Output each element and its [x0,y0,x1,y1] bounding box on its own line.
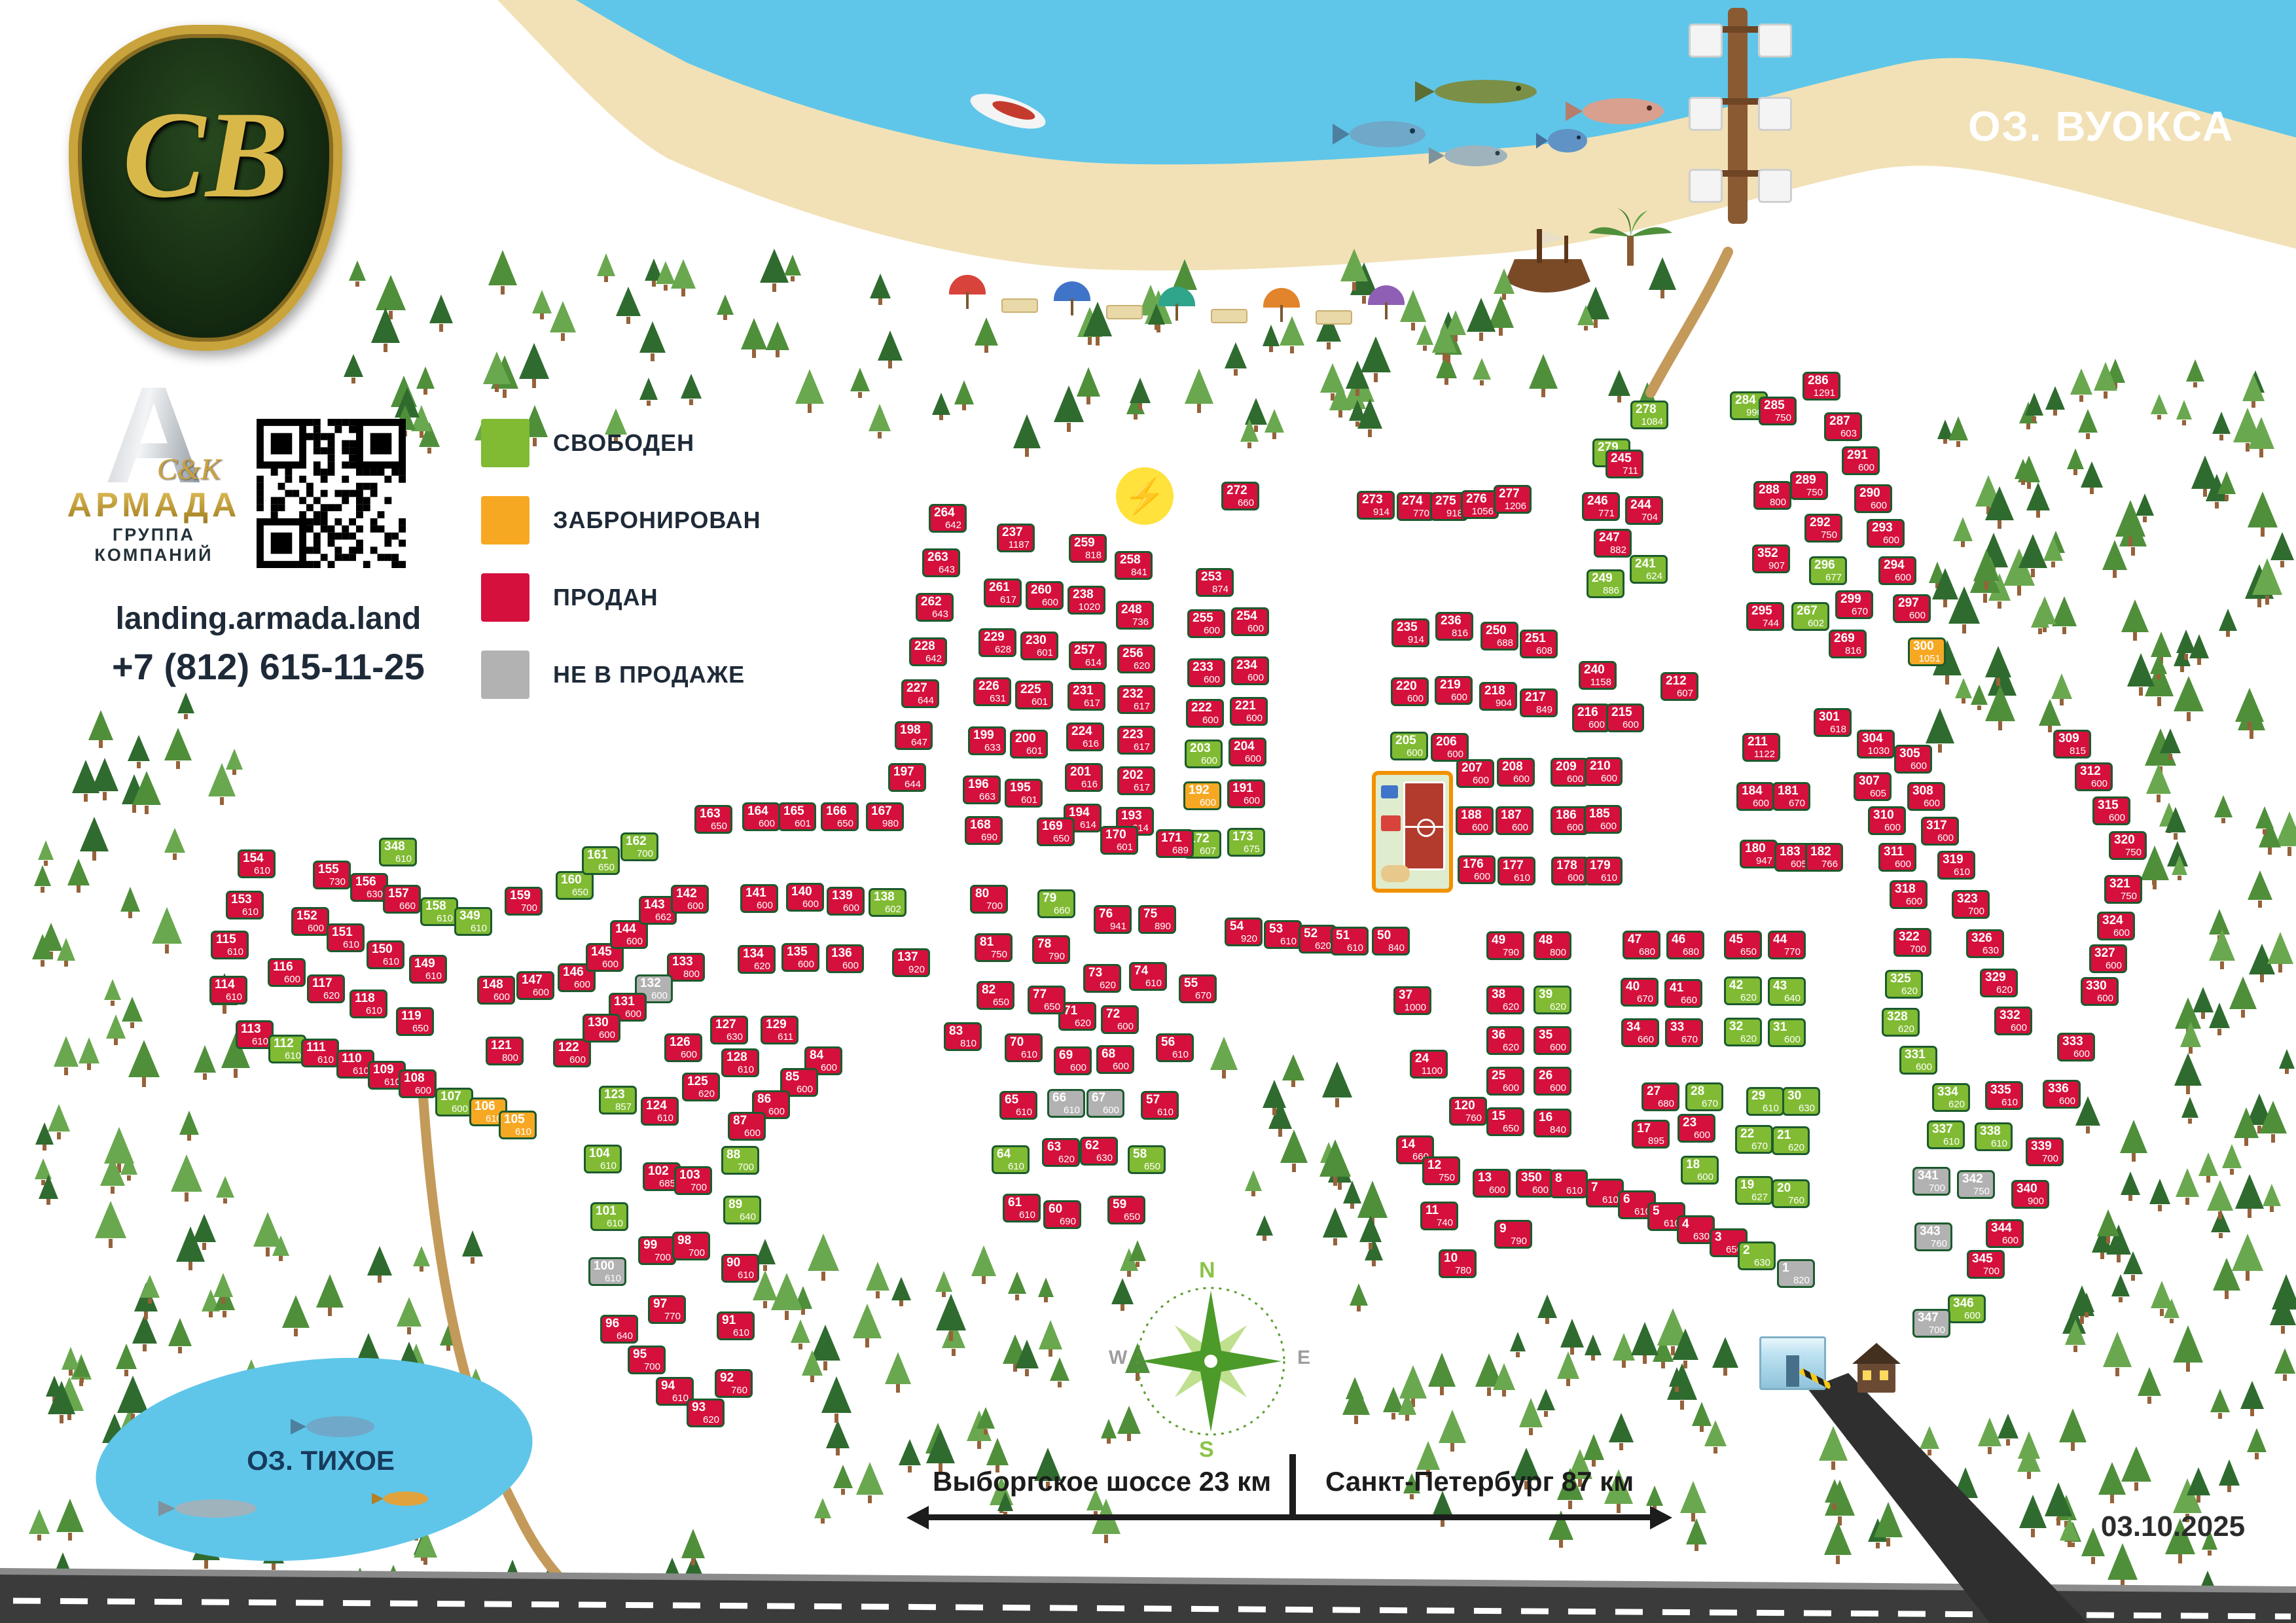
plot-26[interactable]: 26600 [1534,1067,1571,1096]
plot-326[interactable]: 326630 [1966,929,2004,958]
plot-59[interactable]: 59650 [1107,1196,1145,1224]
plot-160[interactable]: 160650 [556,871,594,900]
plot-66[interactable]: 66610 [1047,1089,1085,1118]
plot-245[interactable]: 245711 [1605,450,1643,478]
plot-203[interactable]: 203600 [1185,740,1223,768]
plot-57[interactable]: 57610 [1141,1091,1179,1120]
plot-98[interactable]: 98700 [672,1232,710,1260]
plot-62[interactable]: 62630 [1080,1137,1118,1166]
plot-126[interactable]: 126600 [664,1033,702,1062]
plot-80[interactable]: 80700 [970,885,1008,914]
plot-210[interactable]: 210600 [1585,757,1623,786]
plot-15[interactable]: 15650 [1486,1107,1524,1136]
plot-317[interactable]: 317600 [1921,817,1959,846]
plot-163[interactable]: 163650 [694,805,732,834]
plot-234[interactable]: 234600 [1231,656,1269,685]
plot-24[interactable]: 241100 [1410,1050,1448,1079]
plot-249[interactable]: 249886 [1587,569,1624,598]
plot-291[interactable]: 291600 [1842,446,1880,475]
plot-139[interactable]: 139600 [827,887,865,916]
plot-area: 810 [949,1039,977,1048]
plot-18[interactable]: 18600 [1681,1156,1719,1185]
plot-325[interactable]: 325620 [1885,970,1923,999]
plot-area: 610 [646,1113,673,1123]
phone-number[interactable]: +7 (812) 615-11-25 [33,645,504,688]
plot-273[interactable]: 273914 [1357,491,1395,520]
plot-312[interactable]: 312600 [2075,762,2113,791]
plot-64[interactable]: 64610 [992,1145,1030,1174]
plot-30[interactable]: 30630 [1782,1087,1820,1116]
plot-278[interactable]: 2781084 [1630,401,1668,429]
plot-22[interactable]: 22670 [1735,1125,1773,1154]
plot-256[interactable]: 256620 [1117,645,1155,673]
plot-221[interactable]: 221600 [1230,697,1268,726]
plot-240[interactable]: 2401158 [1579,661,1617,690]
plot-332[interactable]: 332600 [1994,1007,2032,1035]
plot-257[interactable]: 257614 [1069,641,1107,670]
plot-45[interactable]: 45650 [1724,931,1762,959]
plot-147[interactable]: 147600 [516,971,554,1000]
plot-251[interactable]: 251608 [1520,630,1558,658]
plot-37[interactable]: 371000 [1393,986,1431,1015]
plot-322[interactable]: 322700 [1893,928,1931,957]
plot-152[interactable]: 152600 [291,907,329,936]
plot-201[interactable]: 201616 [1065,763,1103,792]
plot-207[interactable]: 207600 [1456,759,1494,788]
plot-250[interactable]: 250688 [1480,622,1518,651]
plot-217[interactable]: 217849 [1520,688,1558,717]
plot-310[interactable]: 310600 [1868,806,1906,835]
plot-151[interactable]: 151610 [327,923,365,952]
plot-186[interactable]: 186600 [1551,806,1588,835]
plot-327[interactable]: 327600 [2089,944,2127,973]
plot-255[interactable]: 255600 [1187,609,1225,638]
plot-67[interactable]: 67600 [1086,1089,1124,1118]
plot-75[interactable]: 75890 [1138,905,1176,934]
plot-177[interactable]: 177610 [1498,857,1535,885]
plot-50[interactable]: 50840 [1372,927,1410,955]
plot-350[interactable]: 350600 [1516,1169,1554,1198]
plot-216[interactable]: 216600 [1572,704,1610,732]
plot-90[interactable]: 90610 [721,1254,759,1283]
plot-155[interactable]: 155730 [313,861,351,889]
plot-287[interactable]: 287603 [1824,412,1862,441]
plot-11[interactable]: 11740 [1420,1202,1458,1230]
plot-238[interactable]: 2381020 [1067,586,1105,615]
plot-346[interactable]: 346600 [1948,1294,1986,1323]
plot-47[interactable]: 47680 [1623,931,1660,959]
plot-267[interactable]: 267602 [1791,602,1829,631]
plot-58[interactable]: 58650 [1128,1145,1166,1174]
plot-49[interactable]: 49790 [1486,931,1524,960]
plot-128[interactable]: 128610 [721,1048,759,1077]
plot-195[interactable]: 195601 [1005,779,1043,808]
plot-79[interactable]: 79660 [1037,889,1075,918]
plot-27[interactable]: 27680 [1641,1082,1679,1111]
plot-339[interactable]: 339700 [2026,1137,2064,1166]
plot-178[interactable]: 178600 [1551,857,1589,885]
plot-330[interactable]: 330600 [2081,977,2119,1006]
plot-46[interactable]: 46680 [1666,931,1704,959]
plot-341[interactable]: 341700 [1912,1167,1950,1196]
plot-274[interactable]: 274770 [1397,492,1435,521]
plot-223[interactable]: 223617 [1117,726,1155,755]
plot-260[interactable]: 260600 [1026,581,1064,610]
plot-285[interactable]: 285750 [1759,397,1797,425]
plot-329[interactable]: 329620 [1980,969,2018,997]
plot-81[interactable]: 81750 [975,933,1013,962]
plot-115[interactable]: 115610 [211,931,249,959]
plot-318[interactable]: 318600 [1890,880,1928,909]
plot-29[interactable]: 29610 [1746,1087,1784,1116]
plot-108[interactable]: 108600 [399,1069,437,1098]
plot-321[interactable]: 321750 [2104,875,2142,904]
plot-78[interactable]: 78790 [1032,935,1070,964]
plot-87[interactable]: 87600 [728,1112,766,1141]
plot-296[interactable]: 296677 [1809,556,1847,585]
plot-43[interactable]: 43640 [1768,977,1806,1006]
plot-226[interactable]: 226631 [973,677,1011,706]
plot-137[interactable]: 137920 [892,948,930,977]
plot-345[interactable]: 345700 [1967,1250,2005,1279]
plot-148[interactable]: 148600 [477,976,515,1005]
plot-38[interactable]: 38620 [1486,986,1524,1014]
plot-96[interactable]: 96640 [600,1315,638,1344]
plot-204[interactable]: 204600 [1229,738,1266,766]
plot-105[interactable]: 105610 [499,1111,537,1139]
plot-area: 631 [978,694,1006,704]
plot-65[interactable]: 65610 [999,1091,1037,1120]
plot-138[interactable]: 138602 [869,888,906,917]
plot-2[interactable]: 2630 [1738,1241,1776,1270]
plot-142[interactable]: 142600 [671,885,709,914]
plot-333[interactable]: 333600 [2057,1033,2095,1061]
plot-211[interactable]: 2111122 [1742,733,1780,762]
plot-292[interactable]: 292750 [1804,514,1842,543]
plot-number: 27 [1647,1085,1674,1098]
plot-277[interactable]: 2771206 [1494,485,1532,514]
plot-338[interactable]: 338610 [1975,1122,2013,1151]
plot-192[interactable]: 192600 [1183,781,1221,810]
plot-200[interactable]: 200601 [1010,730,1048,758]
plot-307[interactable]: 307605 [1854,772,1892,801]
plot-233[interactable]: 233600 [1187,658,1225,687]
plot-9[interactable]: 9790 [1494,1220,1532,1249]
plot-205[interactable]: 205600 [1390,732,1428,760]
plot-100[interactable]: 100610 [588,1257,626,1286]
plot-70[interactable]: 70610 [1005,1033,1043,1062]
plot-28[interactable]: 28670 [1685,1082,1723,1111]
plot-259[interactable]: 259818 [1069,534,1107,563]
plot-103[interactable]: 103700 [674,1166,712,1195]
plot-111[interactable]: 111610 [301,1039,339,1067]
plot-95[interactable]: 95700 [628,1346,666,1374]
plot-number: 296 [1814,559,1842,572]
plot-number: 123 [604,1088,632,1101]
plot-261[interactable]: 261617 [984,579,1022,607]
plot-170[interactable]: 170601 [1100,826,1138,855]
plot-288[interactable]: 288800 [1753,481,1791,510]
plot-124[interactable]: 124610 [641,1097,679,1126]
plot-159[interactable]: 159700 [505,887,543,916]
plot-118[interactable]: 118610 [350,990,387,1018]
plot-167[interactable]: 167980 [866,802,904,831]
plot-158[interactable]: 158610 [420,897,458,926]
plot-141[interactable]: 141600 [740,884,778,913]
plot-349[interactable]: 349610 [454,907,492,936]
plot-125[interactable]: 125620 [682,1073,720,1101]
plot-272[interactable]: 272660 [1221,482,1259,510]
legend-swatch [481,419,529,467]
plot-348[interactable]: 348610 [379,838,417,866]
plot-55[interactable]: 55670 [1179,974,1217,1003]
plot-301[interactable]: 301618 [1814,708,1852,737]
plot-74[interactable]: 74610 [1129,962,1167,991]
plot-253[interactable]: 253874 [1196,568,1234,597]
plot-51[interactable]: 51610 [1331,927,1369,955]
plot-130[interactable]: 130600 [583,1014,620,1043]
plot-10[interactable]: 10780 [1439,1249,1477,1278]
plot-295[interactable]: 295744 [1746,602,1784,631]
plot-21[interactable]: 21620 [1772,1126,1810,1155]
plot-286[interactable]: 2861291 [1803,372,1840,401]
plot-188[interactable]: 188600 [1456,806,1494,835]
plot-82[interactable]: 82650 [977,981,1014,1010]
plot-347[interactable]: 347700 [1912,1309,1950,1338]
plot-290[interactable]: 290600 [1854,484,1892,513]
plot-179[interactable]: 179610 [1585,857,1623,885]
plot-235[interactable]: 235914 [1391,618,1429,647]
plot-area: 601 [1105,842,1133,852]
plot-232[interactable]: 232617 [1117,685,1155,714]
plot-328[interactable]: 328620 [1882,1008,1920,1037]
plot-224[interactable]: 224616 [1066,722,1104,751]
plot-222[interactable]: 222600 [1186,699,1224,728]
plot-337[interactable]: 337610 [1927,1120,1965,1149]
plot-269[interactable]: 269816 [1829,630,1867,658]
plot-101[interactable]: 101610 [590,1202,628,1231]
plot-169[interactable]: 169650 [1037,817,1075,846]
plot-340[interactable]: 340900 [2011,1180,2049,1209]
plot-254[interactable]: 254600 [1231,607,1269,636]
plot-44[interactable]: 44770 [1768,931,1806,959]
plot-35[interactable]: 35600 [1534,1026,1571,1055]
plot-60[interactable]: 60690 [1043,1200,1081,1229]
plot-39[interactable]: 39620 [1534,986,1571,1014]
plot-209[interactable]: 209600 [1551,758,1588,787]
plot-184[interactable]: 184600 [1736,782,1774,811]
plot-36[interactable]: 36620 [1486,1026,1524,1055]
legend-item-sold: ПРОДАН [481,573,658,622]
plot-1[interactable]: 1820 [1777,1259,1815,1288]
plot-289[interactable]: 289750 [1790,471,1828,500]
plot-191[interactable]: 191600 [1227,779,1265,808]
plot-56[interactable]: 56610 [1156,1033,1194,1062]
plot-17[interactable]: 17895 [1632,1120,1670,1149]
plot-104[interactable]: 104610 [584,1145,622,1173]
plot-202[interactable]: 202617 [1117,766,1155,795]
plot-244[interactable]: 244704 [1625,496,1663,525]
plot-116[interactable]: 116600 [268,958,306,987]
plot-12[interactable]: 12750 [1422,1156,1460,1185]
plot-247[interactable]: 247882 [1594,529,1632,558]
plot-83[interactable]: 83810 [944,1022,982,1051]
plot-92[interactable]: 92760 [715,1369,753,1398]
plot-157[interactable]: 157660 [383,885,421,914]
plot-305[interactable]: 305600 [1894,745,1932,774]
plot-231[interactable]: 231617 [1067,682,1105,711]
plot-123[interactable]: 123857 [599,1086,637,1115]
plot-121[interactable]: 121800 [486,1037,524,1065]
plot-219[interactable]: 219600 [1435,676,1473,705]
plot-197[interactable]: 197644 [888,763,926,792]
plot-236[interactable]: 236816 [1435,612,1473,641]
plot-229[interactable]: 229628 [978,628,1016,657]
plot-206[interactable]: 206600 [1431,733,1469,762]
plot-336[interactable]: 336600 [2043,1080,2081,1109]
plot-161[interactable]: 161650 [582,846,620,875]
plot-33[interactable]: 33670 [1665,1018,1703,1047]
plot-164[interactable]: 164600 [742,802,780,831]
plot-168[interactable]: 168690 [965,816,1003,845]
plot-76[interactable]: 76941 [1094,905,1132,934]
plot-63[interactable]: 63620 [1042,1138,1080,1167]
plot-120[interactable]: 120760 [1449,1097,1487,1126]
plot-area: 600 [1521,1185,1549,1195]
plot-61[interactable]: 61610 [1003,1194,1041,1222]
plot-334[interactable]: 334620 [1932,1083,1970,1112]
plot-119[interactable]: 119650 [396,1007,434,1036]
plot-225[interactable]: 225601 [1015,681,1053,709]
plot-41[interactable]: 41660 [1664,979,1702,1008]
plot-73[interactable]: 73620 [1083,964,1121,993]
plot-343[interactable]: 343760 [1914,1222,1952,1251]
plot-77[interactable]: 77650 [1028,986,1066,1014]
plot-154[interactable]: 154610 [238,849,276,878]
plot-150[interactable]: 150610 [367,940,404,969]
plot-173[interactable]: 173675 [1227,828,1265,857]
plot-352[interactable]: 352907 [1752,544,1790,573]
plot-88[interactable]: 88700 [721,1146,759,1175]
plot-182[interactable]: 182766 [1805,843,1843,872]
plot-294[interactable]: 294600 [1878,556,1916,585]
plot-297[interactable]: 297600 [1893,594,1931,623]
plot-215[interactable]: 215600 [1606,704,1644,732]
plot-19[interactable]: 19627 [1735,1176,1773,1205]
plot-31[interactable]: 31600 [1768,1018,1806,1047]
plot-196[interactable]: 196663 [963,776,1001,804]
plot-180[interactable]: 180947 [1740,840,1778,868]
plot-99[interactable]: 99700 [638,1236,676,1265]
plot-140[interactable]: 140600 [786,883,824,912]
plot-97[interactable]: 97770 [648,1295,686,1324]
plot-230[interactable]: 230601 [1020,632,1058,660]
plot-342[interactable]: 342750 [1957,1170,1995,1199]
plot-308[interactable]: 308600 [1907,782,1945,811]
plot-166[interactable]: 166650 [821,802,859,831]
website-link[interactable]: landing.armada.land [39,601,497,637]
plot-220[interactable]: 220600 [1391,677,1429,706]
plot-91[interactable]: 91610 [717,1311,755,1340]
plot-34[interactable]: 34660 [1621,1018,1659,1047]
plot-248[interactable]: 248736 [1116,601,1154,630]
plot-208[interactable]: 208600 [1497,758,1535,787]
plot-number: 79 [1043,892,1070,905]
plot-304[interactable]: 3041030 [1857,730,1895,758]
plot-323[interactable]: 323700 [1952,890,1990,919]
plot-20[interactable]: 20760 [1772,1179,1810,1208]
plot-area: 600 [1577,720,1605,730]
plot-129[interactable]: 129611 [761,1016,798,1044]
plot-32[interactable]: 32620 [1724,1018,1762,1046]
plot-25[interactable]: 25600 [1486,1067,1524,1096]
plot-69[interactable]: 69600 [1054,1046,1092,1075]
plot-293[interactable]: 293600 [1867,519,1905,548]
plot-72[interactable]: 72600 [1101,1005,1139,1034]
plot-13[interactable]: 13600 [1473,1169,1511,1198]
plot-93[interactable]: 93620 [687,1399,725,1427]
plot-246[interactable]: 246771 [1582,492,1620,521]
plot-16[interactable]: 16840 [1534,1109,1571,1137]
plot-324[interactable]: 324600 [2097,912,2135,940]
plot-134[interactable]: 134620 [738,945,776,974]
plot-187[interactable]: 187600 [1496,806,1534,835]
plot-area: 610 [1555,1186,1583,1196]
plot-320[interactable]: 320750 [2109,831,2147,860]
plot-309[interactable]: 309815 [2053,730,2091,758]
plot-258[interactable]: 258841 [1115,551,1153,580]
plot-136[interactable]: 136600 [826,944,864,973]
plot-344[interactable]: 344600 [1986,1219,2024,1248]
plot-241[interactable]: 241624 [1630,555,1668,584]
plot-area: 610 [1653,1219,1680,1228]
plot-212[interactable]: 212607 [1660,672,1698,701]
plot-176[interactable]: 176600 [1458,855,1496,884]
plot-237[interactable]: 2371187 [997,524,1035,552]
plot-311[interactable]: 311600 [1878,843,1916,872]
plot-54[interactable]: 54920 [1225,918,1263,946]
plot-153[interactable]: 153610 [226,891,264,919]
plot-218[interactable]: 218904 [1479,682,1517,711]
plot-48[interactable]: 48800 [1534,931,1571,960]
plot-107[interactable]: 107600 [435,1088,473,1116]
plot-162[interactable]: 162700 [620,832,658,861]
plot-114[interactable]: 114610 [209,976,247,1005]
plot-89[interactable]: 89640 [723,1196,761,1224]
plot-331[interactable]: 331600 [1899,1046,1937,1075]
plot-185[interactable]: 185600 [1584,805,1622,834]
plot-335[interactable]: 335610 [1985,1081,2023,1110]
plot-23[interactable]: 23600 [1677,1114,1715,1143]
plot-135[interactable]: 135600 [781,943,819,972]
plot-68[interactable]: 68600 [1096,1045,1134,1074]
plot-319[interactable]: 319610 [1937,851,1975,880]
plot-117[interactable]: 117620 [307,974,345,1003]
plot-299[interactable]: 299670 [1835,590,1873,619]
plot-8[interactable]: 8610 [1550,1169,1588,1198]
plot-122[interactable]: 122600 [553,1039,591,1067]
plot-315[interactable]: 315600 [2092,796,2130,825]
plot-149[interactable]: 149610 [409,955,447,984]
plot-171[interactable]: 171689 [1156,829,1194,858]
plot-127[interactable]: 127630 [710,1016,748,1044]
plot-42[interactable]: 42620 [1724,976,1762,1005]
plot-300[interactable]: 3001051 [1908,637,1946,666]
plot-165[interactable]: 165601 [778,802,816,831]
plot-40[interactable]: 40670 [1621,978,1659,1007]
plot-181[interactable]: 181670 [1772,782,1810,811]
plot-53[interactable]: 53610 [1264,920,1302,949]
